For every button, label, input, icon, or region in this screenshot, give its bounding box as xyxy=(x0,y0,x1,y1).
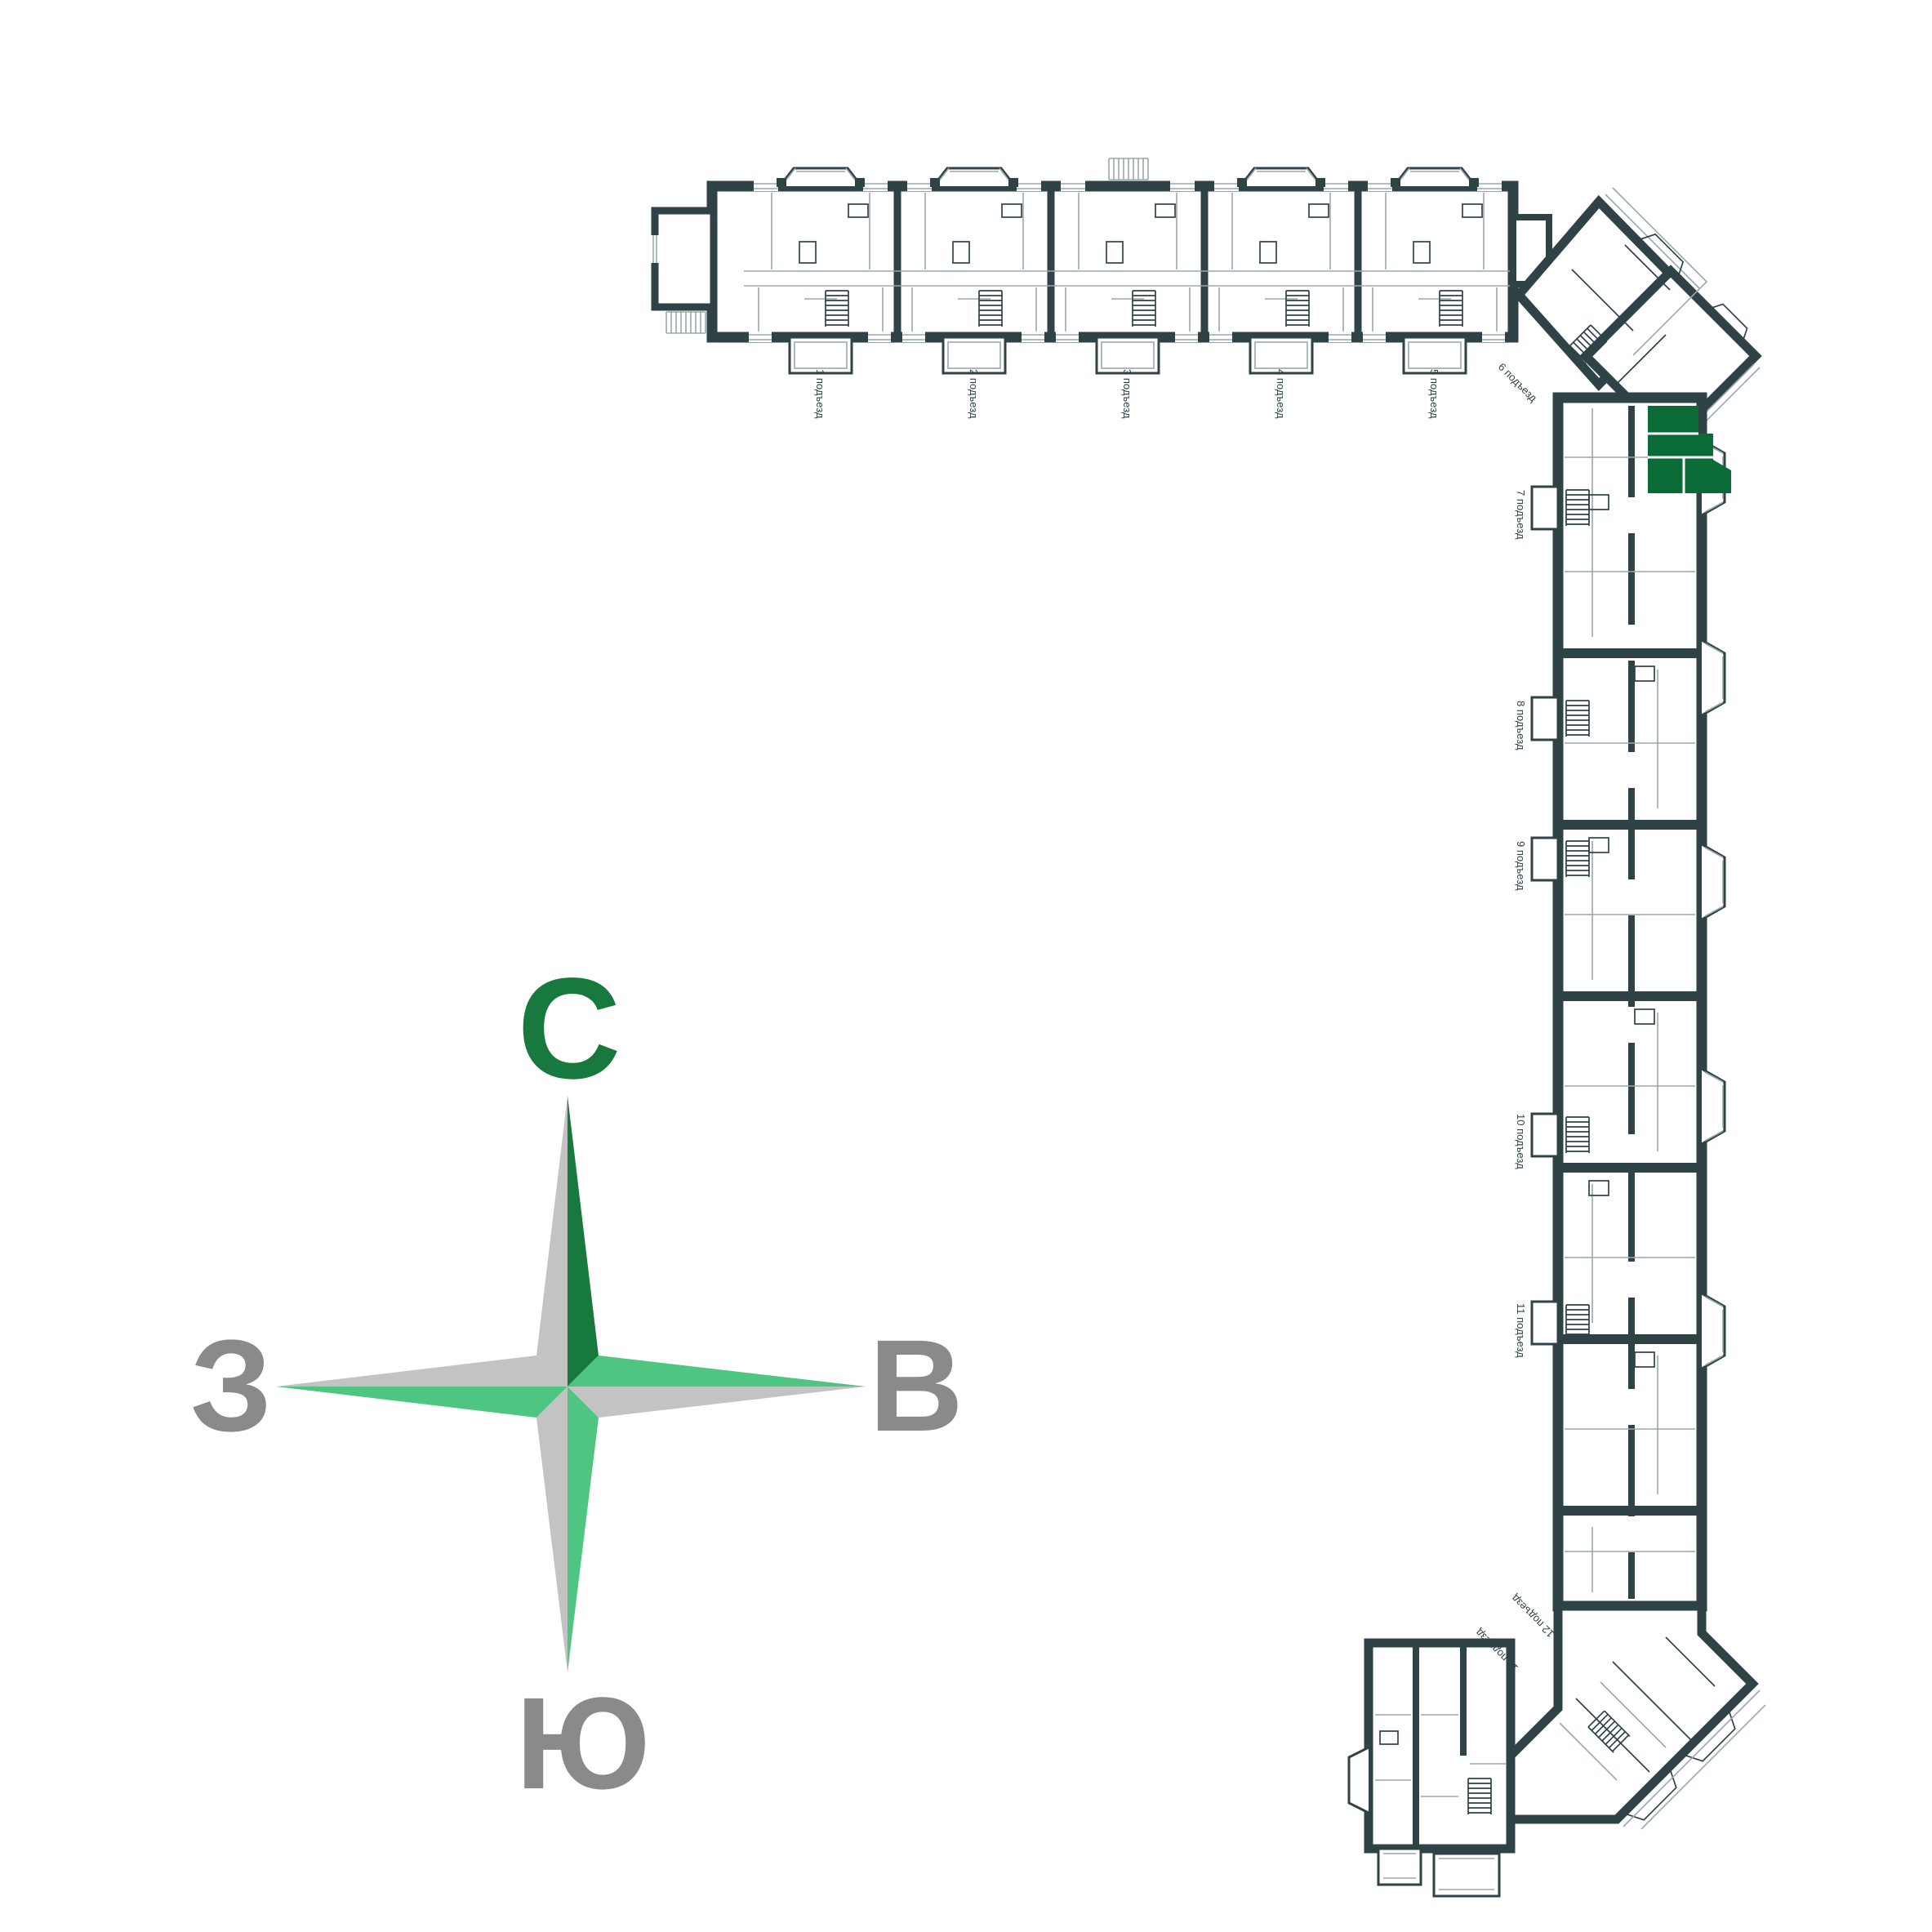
entrance-label-3: 3 подъезд xyxy=(1121,369,1133,419)
porch-entrance-4 xyxy=(1250,337,1312,373)
annex-block xyxy=(655,211,714,307)
entrance-label-11: 11 подъезд xyxy=(1515,1303,1527,1358)
porch-entrance-2 xyxy=(943,337,1005,373)
compass-south-arm-left xyxy=(536,1387,568,1672)
compass-west-arm-bottom xyxy=(276,1387,568,1418)
compass-west-arm-top xyxy=(276,1356,568,1387)
compass-east-arm-top xyxy=(568,1356,866,1387)
entrance-label-6: 6 подъезд xyxy=(1496,361,1540,405)
entrance-label-8: 8 подъезд xyxy=(1515,701,1527,750)
entrance-label-9: 9 подъезд xyxy=(1515,841,1527,891)
entrance-labels: 1 подъезд 2 подъезд 3 подъезд 4 подъезд … xyxy=(814,361,1556,1675)
entrance-label-10: 10 подъезд xyxy=(1515,1114,1527,1169)
porch-entrance-1 xyxy=(790,337,852,373)
entrance-label-1: 1 подъезд xyxy=(814,369,826,419)
compass-label-west: З xyxy=(190,1312,272,1458)
entrance-label-12: 12 подъезд xyxy=(1508,1592,1556,1640)
floor-plan-page: 1 подъезд 2 подъезд 3 подъезд 4 подъезд … xyxy=(0,0,1932,1932)
compass-label-east: В xyxy=(869,1312,964,1458)
compass-north-arm-right xyxy=(568,1096,599,1387)
compass-rose: С З В Ю xyxy=(190,949,964,1816)
bottom-wing xyxy=(1349,1606,1765,1896)
compass-label-north: С xyxy=(517,949,621,1109)
compass-east-arm-bottom xyxy=(568,1387,866,1418)
entrance-label-7: 7 подъезд xyxy=(1515,490,1527,540)
entrance-label-2: 2 подъезд xyxy=(968,369,980,419)
compass-north-arm-left xyxy=(536,1096,568,1387)
porch-entrance-5 xyxy=(1404,337,1466,373)
top-wing xyxy=(651,158,1513,373)
compass-south-arm-right xyxy=(568,1387,599,1672)
entrance-label-4: 4 подъезд xyxy=(1275,369,1287,419)
porch-entrance-3 xyxy=(1097,337,1159,373)
right-wing xyxy=(1532,398,1725,1606)
entrance-label-5: 5 подъезд xyxy=(1428,369,1440,419)
bottom-block-outline xyxy=(1369,1643,1511,1849)
compass-label-south: Ю xyxy=(516,1670,651,1816)
